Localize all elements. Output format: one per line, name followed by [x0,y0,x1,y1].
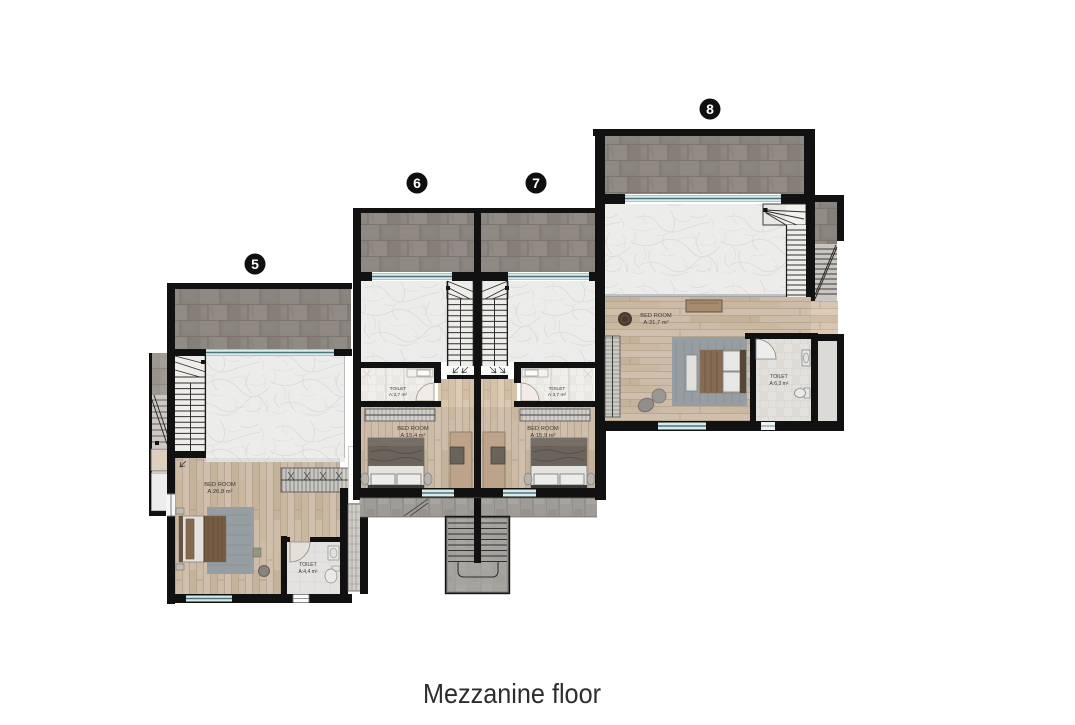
svg-text:5: 5 [251,256,259,272]
svg-text:8: 8 [706,101,714,117]
svg-text:Mezzanine floor: Mezzanine floor [423,678,601,709]
svg-text:6: 6 [413,175,421,191]
svg-text:A:3,7 m²: A:3,7 m² [548,392,567,398]
svg-text:A:3,7 m²: A:3,7 m² [389,392,408,398]
svg-text:TOILET: TOILET [549,386,566,392]
svg-text:7: 7 [532,175,540,191]
svg-text:TOILET: TOILET [390,386,407,392]
